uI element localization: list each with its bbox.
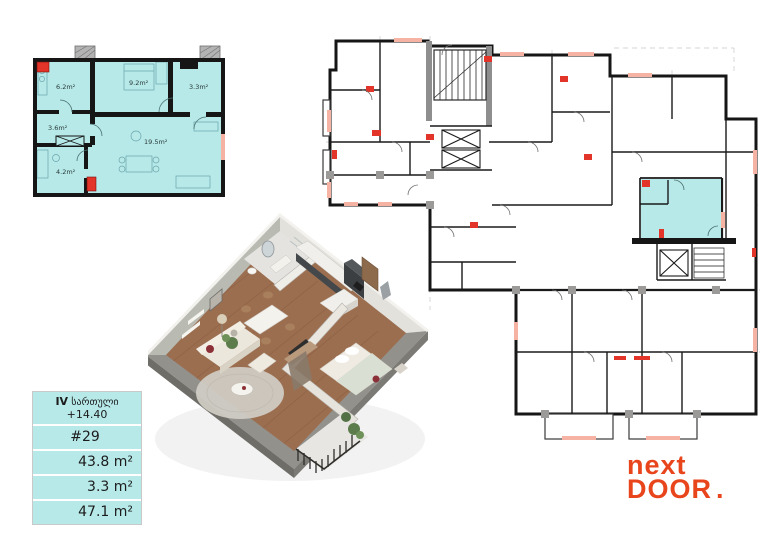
balcony-area: 3.3 m² bbox=[33, 474, 141, 499]
unit-info-box: IV სართული +14.40 #29 43.8 m² 3.3 m² 47.… bbox=[32, 391, 142, 525]
highlighted-unit-fill[interactable] bbox=[641, 179, 721, 238]
bathroom-mirror bbox=[262, 241, 274, 257]
coffee-table bbox=[231, 383, 253, 396]
vent-shaft bbox=[56, 136, 84, 146]
room-label-living: 19.5m² bbox=[144, 138, 168, 146]
total-area: 47.1 m² bbox=[33, 499, 141, 524]
brochure-page: 6.2m² 9.2m² 3.3m² 3.6m² 4.2m² 19.5m² bbox=[0, 0, 768, 536]
window-marker bbox=[221, 134, 225, 160]
room-label-kitchen: 6.2m² bbox=[56, 83, 76, 91]
dining-chair bbox=[241, 306, 251, 313]
room-label-bedroom: 9.2m² bbox=[129, 79, 149, 87]
floor-elevation: +14.40 bbox=[35, 408, 139, 421]
core-wall-west bbox=[426, 41, 432, 121]
floor-lamp bbox=[217, 314, 227, 324]
bed-pillow bbox=[335, 355, 349, 363]
bed-pillow-red bbox=[373, 376, 380, 383]
room-label-bathroom: 4.2m² bbox=[56, 168, 76, 176]
floor-roman: IV bbox=[55, 395, 68, 408]
logo-line2: DOOR bbox=[627, 474, 712, 504]
sofa-pillow-red bbox=[206, 345, 214, 353]
apartment-area: 43.8 m² bbox=[33, 449, 141, 474]
logo-dot: . bbox=[716, 477, 725, 501]
info-header: IV სართული +14.40 bbox=[33, 392, 141, 424]
apartment-3d-render bbox=[148, 203, 440, 495]
highlighted-unit-29[interactable] bbox=[632, 178, 736, 244]
structural-columns bbox=[75, 46, 220, 60]
nextdoor-logo: next DOOR. bbox=[627, 453, 757, 501]
unit-floor-plan: 6.2m² 9.2m² 3.3m² 3.6m² 4.2m² 19.5m² bbox=[26, 38, 230, 206]
toilet bbox=[248, 268, 257, 274]
floor-word: სართული bbox=[71, 397, 118, 408]
unit-number: #29 bbox=[33, 424, 141, 449]
room-label-hallway: 3.6m² bbox=[48, 124, 68, 132]
room-label-balcony: 3.3m² bbox=[189, 83, 209, 91]
